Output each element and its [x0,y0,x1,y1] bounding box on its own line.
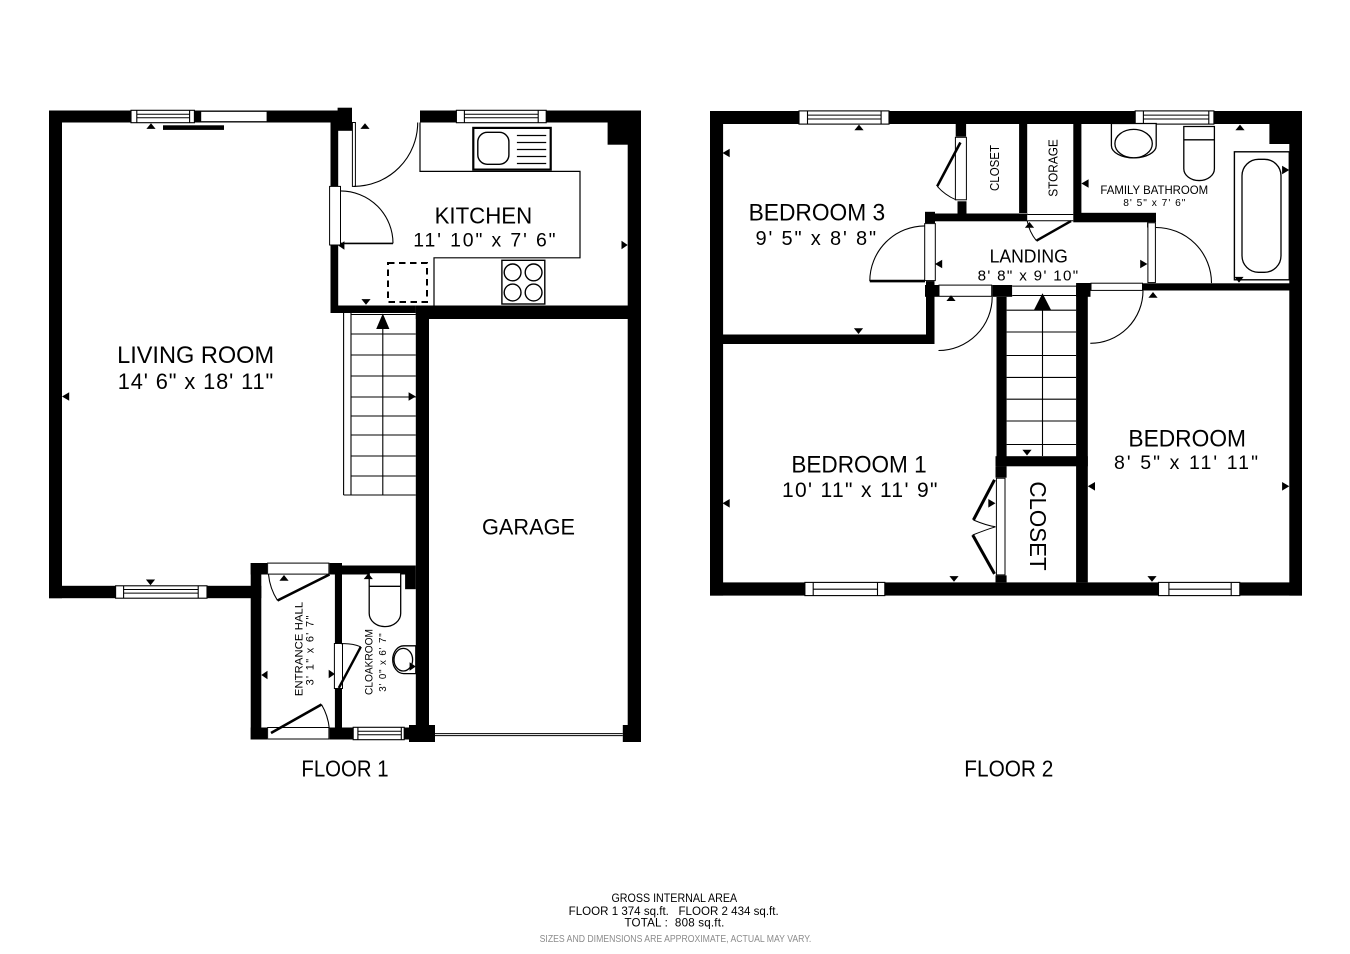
svg-text:BEDROOM 3: BEDROOM 3 [749,199,886,226]
svg-text:14' 6" x 18' 11": 14' 6" x 18' 11" [118,369,274,394]
svg-text:FLOOR 1: FLOOR 1 [301,755,388,781]
svg-text:LANDING: LANDING [990,245,1068,266]
svg-text:3' 0" x 6' 7": 3' 0" x 6' 7" [378,633,389,692]
svg-text:LIVING ROOM: LIVING ROOM [117,342,274,369]
svg-text:BEDROOM 1: BEDROOM 1 [791,452,926,479]
svg-text:FAMILY BATHROOM: FAMILY BATHROOM [1100,184,1208,197]
svg-text:BEDROOM: BEDROOM [1128,426,1246,453]
svg-text:STORAGE: STORAGE [1047,139,1061,197]
svg-text:TOTAL : 808 sq.ft.: TOTAL : 808 sq.ft. [624,917,724,930]
svg-text:GARAGE: GARAGE [482,514,575,539]
svg-text:3' 1" x 6' 7": 3' 1" x 6' 7" [305,616,317,686]
svg-text:CLOSET: CLOSET [1025,481,1051,570]
svg-text:8' 5" x 7' 6": 8' 5" x 7' 6" [1123,198,1186,209]
svg-text:FLOOR 2: FLOOR 2 [964,755,1053,781]
svg-text:SIZES AND DIMENSIONS ARE APPRO: SIZES AND DIMENSIONS ARE APPROXIMATE, AC… [540,934,812,945]
svg-text:8' 8" x 9' 10": 8' 8" x 9' 10" [978,267,1079,284]
svg-text:CLOAKROOM: CLOAKROOM [364,629,376,695]
svg-text:GROSS INTERNAL AREA: GROSS INTERNAL AREA [611,892,737,905]
svg-text:9' 5" x 8' 8": 9' 5" x 8' 8" [756,228,877,250]
svg-text:KITCHEN: KITCHEN [435,202,533,228]
svg-text:CLOSET: CLOSET [988,145,1002,191]
